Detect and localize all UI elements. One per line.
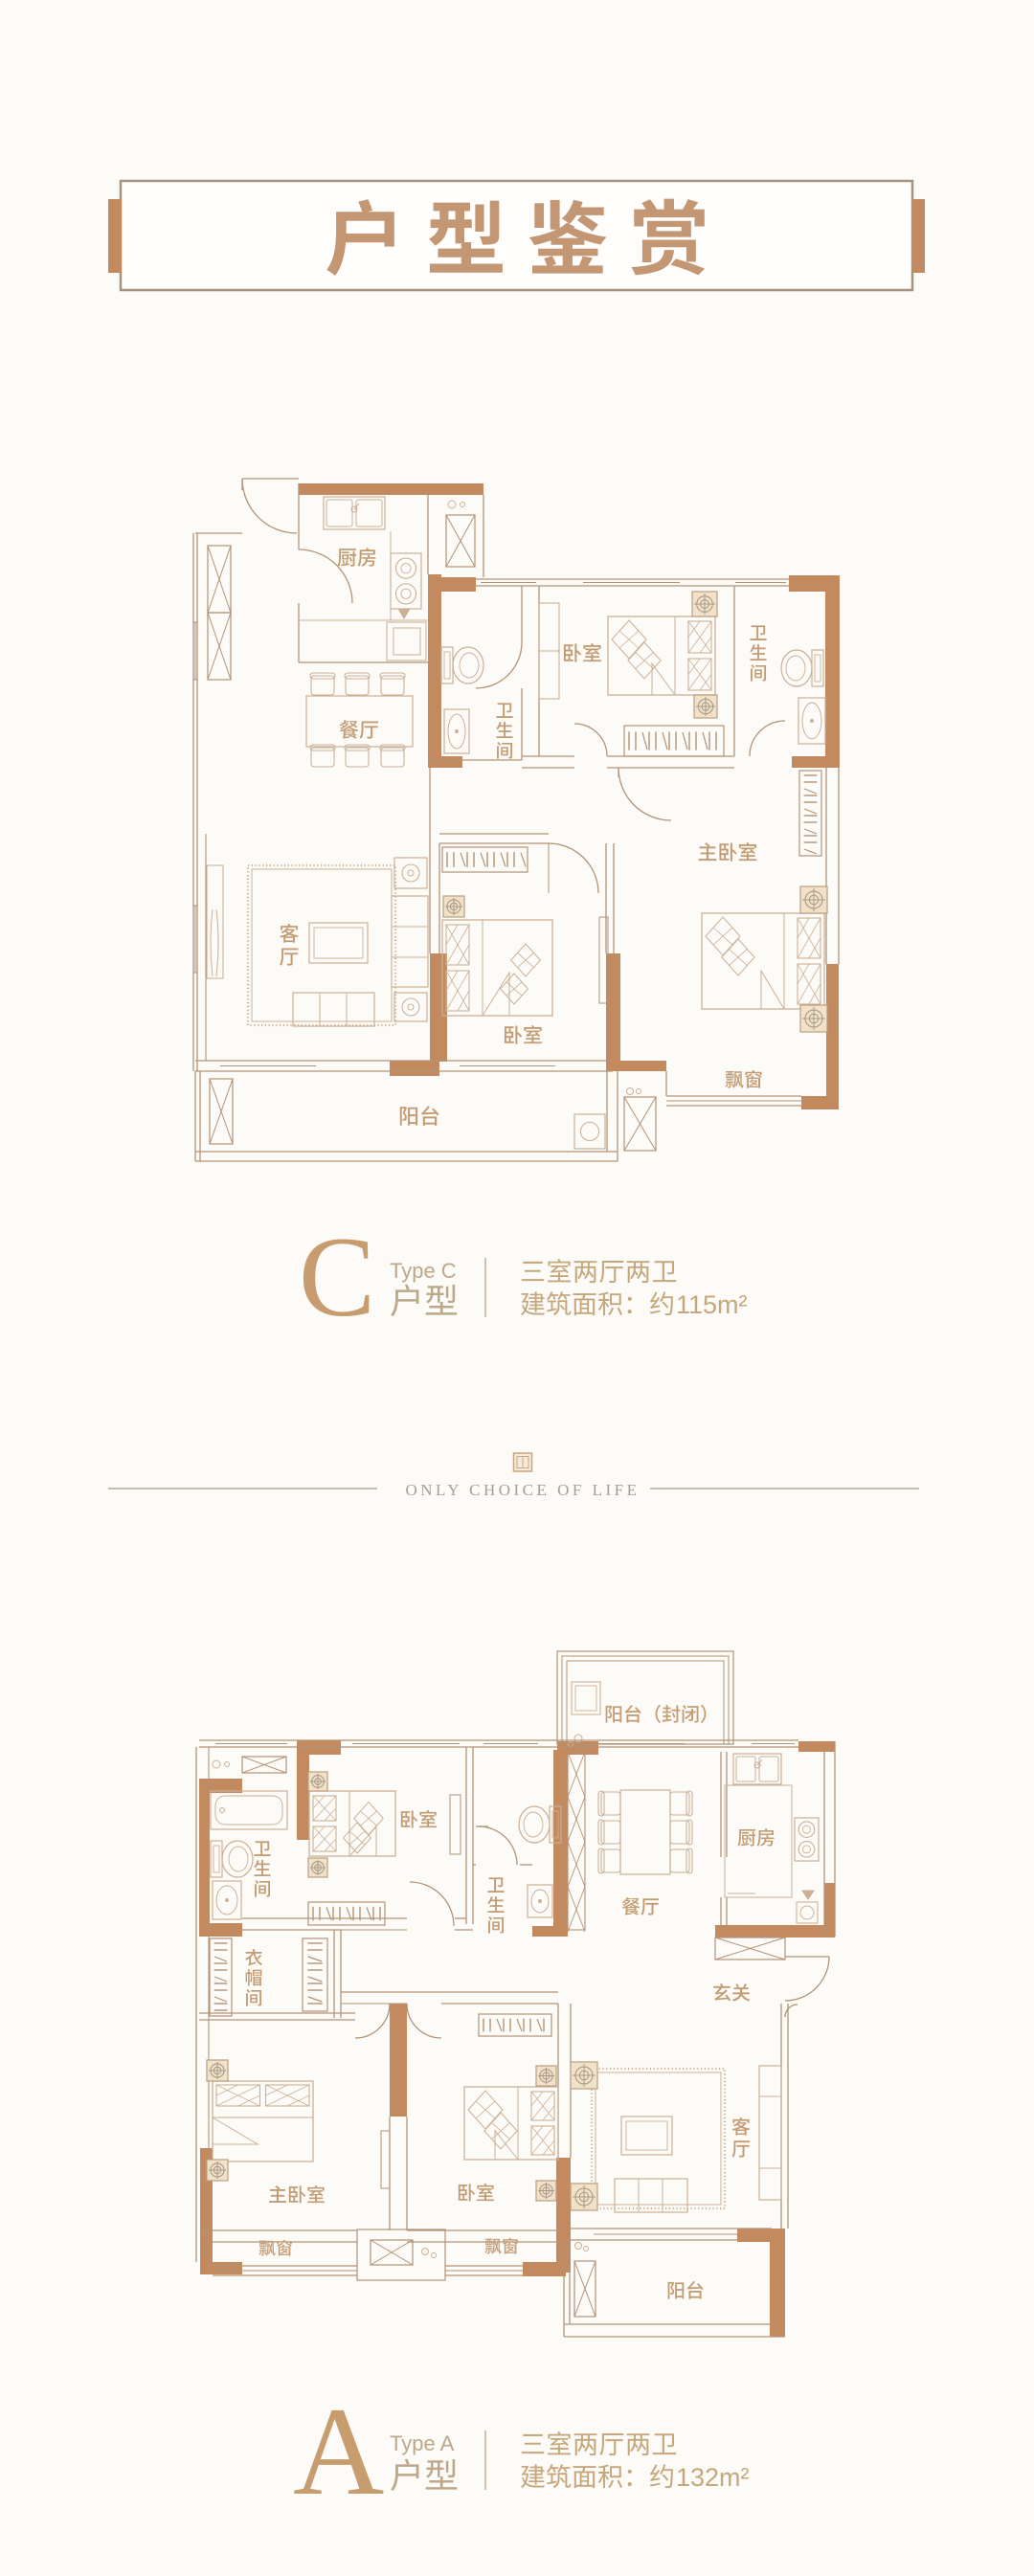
svg-text:Type C: Type C: [390, 1259, 457, 1283]
svg-text:132m²: 132m²: [676, 2463, 750, 2492]
svg-text:Type A: Type A: [390, 2431, 455, 2455]
svg-text:C: C: [299, 1213, 375, 1340]
svg-text:115m²: 115m²: [676, 1290, 748, 1319]
svg-text:A: A: [293, 2381, 384, 2521]
svg-text:ONLY CHOICE OF LIFE: ONLY CHOICE OF LIFE: [405, 1481, 640, 1499]
